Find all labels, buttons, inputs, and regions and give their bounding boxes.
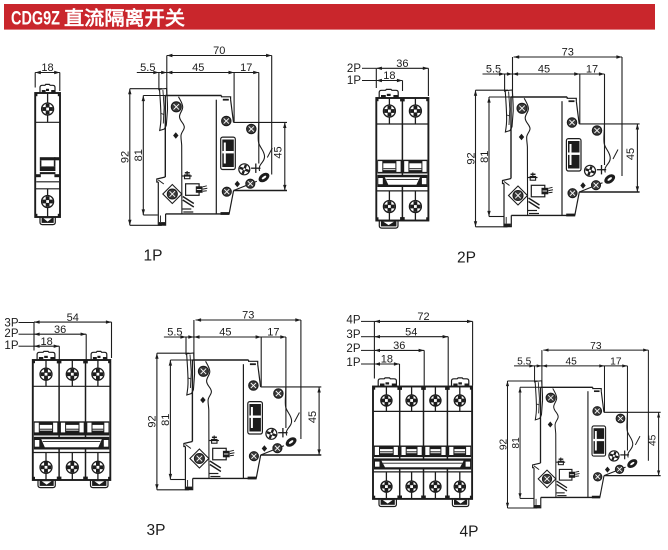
svg-text:45: 45 [219, 326, 231, 338]
svg-text:CDG9Z: CDG9Z [11, 9, 60, 30]
svg-text:17: 17 [610, 356, 622, 367]
svg-text:1P: 1P [346, 357, 360, 369]
svg-text:45: 45 [538, 63, 550, 75]
svg-text:3P: 3P [147, 522, 166, 539]
svg-text:18: 18 [40, 336, 52, 348]
svg-text:73: 73 [590, 341, 602, 352]
svg-text:92: 92 [465, 152, 477, 164]
svg-text:45: 45 [273, 146, 285, 158]
svg-text:2P: 2P [4, 328, 18, 340]
svg-text:92: 92 [147, 415, 159, 427]
svg-text:4P: 4P [460, 524, 479, 541]
svg-text:45: 45 [192, 62, 204, 74]
svg-text:5.5: 5.5 [167, 326, 182, 338]
svg-text:5.5: 5.5 [140, 62, 155, 74]
svg-text:1P: 1P [347, 75, 361, 87]
svg-text:5.5: 5.5 [517, 356, 532, 367]
svg-text:73: 73 [562, 47, 574, 59]
svg-text:2P: 2P [346, 343, 360, 355]
svg-text:54: 54 [405, 326, 417, 338]
svg-text:36: 36 [54, 324, 66, 336]
svg-text:92: 92 [120, 151, 132, 163]
svg-text:36: 36 [393, 340, 405, 352]
svg-text:直流隔离开关: 直流隔离开关 [64, 7, 185, 30]
svg-text:45: 45 [566, 356, 578, 367]
svg-text:1P: 1P [4, 340, 18, 352]
svg-text:81: 81 [160, 414, 172, 426]
svg-text:2P: 2P [457, 250, 476, 267]
svg-text:18: 18 [383, 70, 395, 82]
svg-text:81: 81 [479, 151, 491, 163]
svg-text:1P: 1P [144, 248, 163, 265]
svg-text:17: 17 [240, 62, 252, 74]
svg-text:81: 81 [511, 437, 522, 449]
svg-text:36: 36 [396, 58, 408, 70]
svg-text:18: 18 [41, 62, 53, 74]
svg-text:17: 17 [267, 326, 279, 338]
svg-text:3P: 3P [346, 329, 360, 341]
svg-text:45: 45 [648, 434, 659, 446]
svg-text:4P: 4P [346, 315, 360, 327]
svg-text:45: 45 [307, 411, 319, 423]
svg-text:54: 54 [67, 312, 79, 324]
svg-text:73: 73 [242, 310, 254, 322]
svg-text:81: 81 [133, 149, 145, 161]
svg-text:72: 72 [417, 311, 429, 323]
svg-text:5.5: 5.5 [486, 63, 501, 75]
svg-text:45: 45 [625, 148, 637, 160]
svg-text:18: 18 [381, 354, 393, 366]
svg-text:17: 17 [586, 63, 598, 75]
svg-text:70: 70 [213, 45, 225, 57]
svg-text:92: 92 [498, 438, 509, 450]
svg-text:2P: 2P [347, 63, 361, 75]
